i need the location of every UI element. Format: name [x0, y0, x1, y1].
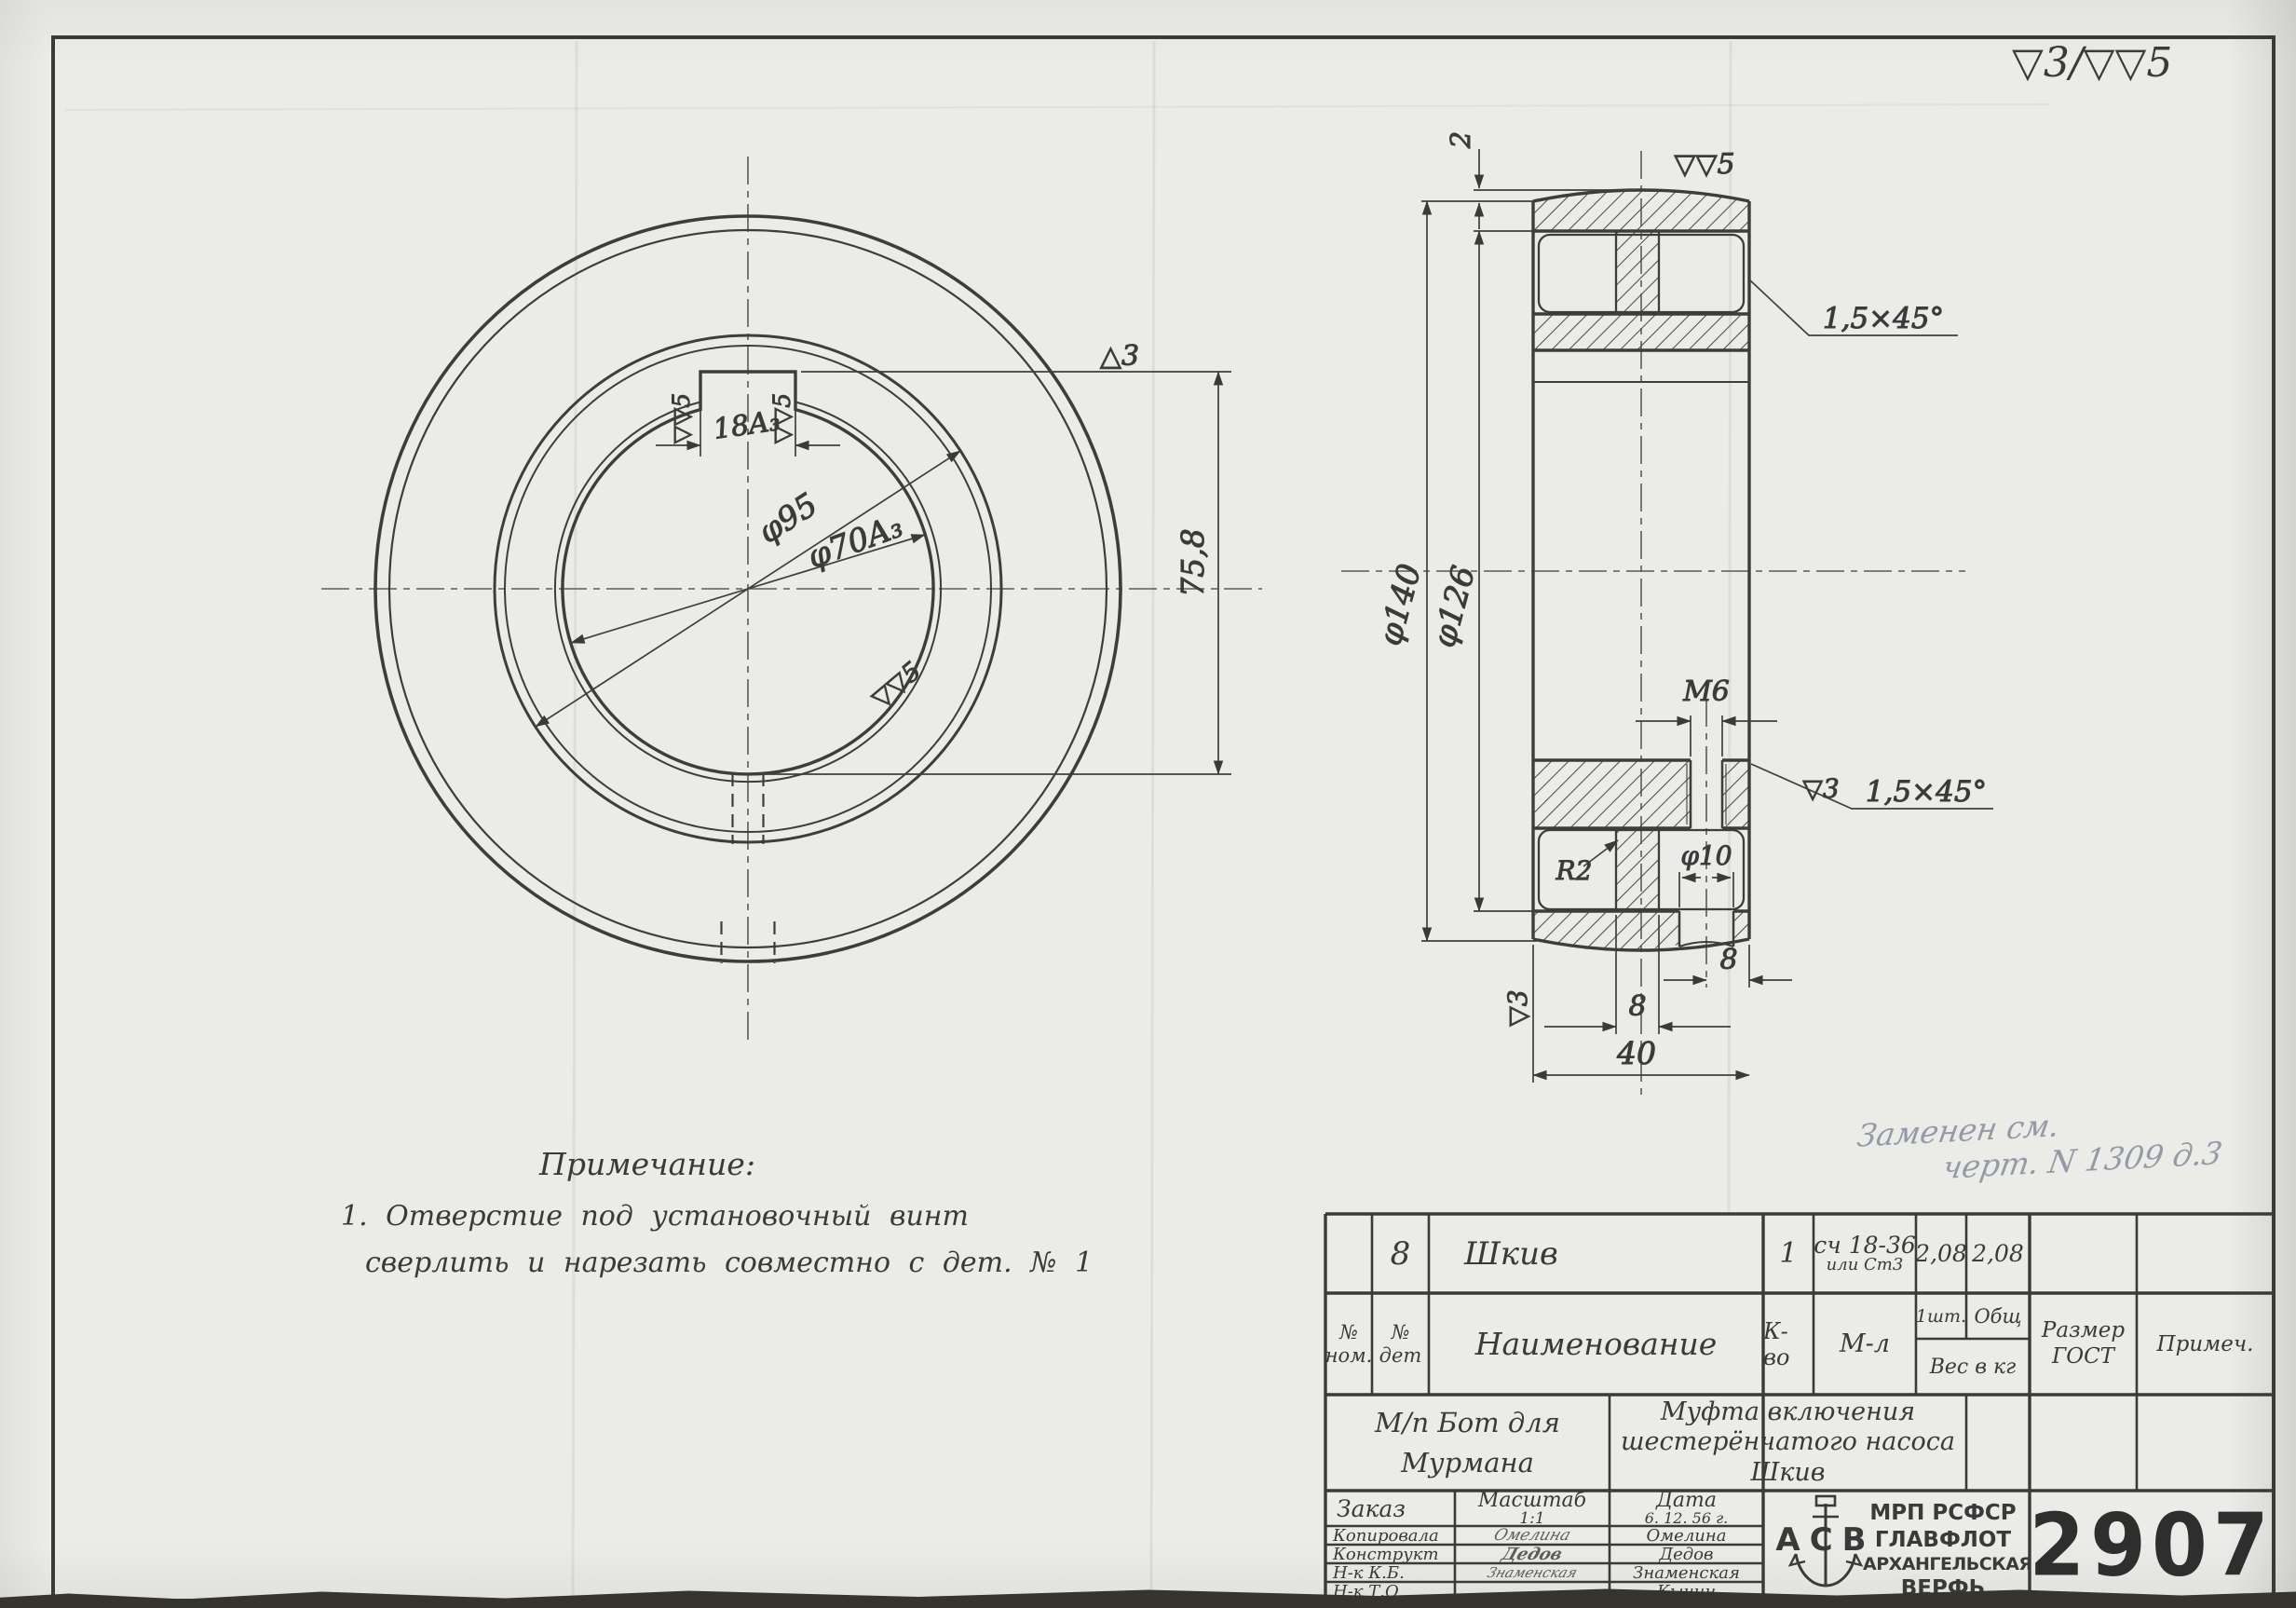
header-size-top: Размер	[2042, 1318, 2125, 1344]
note-line-1: 1. Отверстие под установочный винт	[341, 1200, 969, 1233]
hidden-access-hole	[722, 921, 775, 963]
bore-chamfer-circle	[555, 402, 941, 783]
access-hole-diameter-label: φ10	[1680, 840, 1732, 871]
bore-with-keyway	[563, 372, 933, 774]
crown-height-label: 2	[1445, 131, 1476, 149]
part-material-cell: сч 18-36 или Ст3	[1814, 1214, 1916, 1293]
part-qty-cell: 1	[1763, 1214, 1814, 1293]
front-centerlines	[321, 157, 1262, 1042]
keyway-finish-mark-right: ▽▽5	[768, 393, 795, 443]
section-centerlines	[1341, 151, 1965, 1101]
bore-finish-mark: ▽▽5	[866, 657, 927, 714]
outer-diameter-label: φ140	[1372, 560, 1430, 649]
access-hole	[1679, 911, 1733, 947]
bore-diameter-label: φ70A₃	[803, 508, 908, 577]
header-num-bottom: ном.	[1325, 1344, 1373, 1367]
sig-scribble-1: Дедов	[1452, 1545, 1612, 1563]
project-cell: М/п Бот для Мурмана	[1325, 1395, 1610, 1491]
section-view: 2 φ140 φ126 ▽▽5 1,5×45° M6 ▽3 1,5×45° R2…	[1341, 131, 1993, 1101]
scale-label: Масштаб	[1478, 1491, 1586, 1511]
part-title-cell: Муфта включения шестерёнчатого насоса Шк…	[1610, 1395, 1966, 1491]
order-label: Заказ	[1325, 1491, 1455, 1526]
hub-outer-circle	[495, 335, 1001, 842]
general-finish-note: ▽3/▽▽5	[2012, 39, 2273, 87]
shipyard-anchor-logo: АСВ	[1775, 1496, 1875, 1586]
part-title-line2: шестерёнчатого насоса	[1621, 1427, 1955, 1457]
rim-inner-diameter-label: φ126	[1426, 562, 1484, 651]
setscrew-hole	[1687, 760, 1726, 828]
sig-name-2: Знаменская	[1610, 1563, 1763, 1582]
rim-crown-circle	[389, 230, 1107, 947]
groove-openings	[1539, 231, 1744, 911]
sig-name-0: Омелина	[1610, 1526, 1763, 1545]
sig-name-1: Дедов	[1610, 1545, 1763, 1563]
web-thickness-label: 8	[1628, 990, 1646, 1023]
blueprint-sheet: φ95 φ70A₃ 18A₃ 75,8 △3 ▽▽5 ▽▽5 ▽▽5	[0, 0, 2296, 1608]
header-det-top: №	[1392, 1321, 1410, 1343]
sig-role-2: Н-к К.Б.	[1325, 1563, 1455, 1582]
drawing-number: 2907	[2030, 1486, 2274, 1604]
hidden-setscrew-hole	[733, 773, 764, 844]
scale-value: 1:1	[1519, 1511, 1544, 1527]
section-hatching	[1533, 190, 1749, 950]
header-det-bottom: дет	[1379, 1344, 1422, 1367]
fillet-radius-label: R2	[1556, 855, 1593, 886]
face-finish-mark: △3	[1100, 340, 1139, 373]
setscrew-thread-label: M6	[1682, 675, 1730, 708]
hub-diameter-label: φ95	[752, 486, 824, 552]
part-name-cell: Шкив	[1429, 1214, 1763, 1293]
org-block: МРП РСФСР ГЛАВФЛОТ АРХАНГЕЛЬСКАЯ ВЕРФЬ	[1863, 1500, 2023, 1602]
sig-role-1: Конструкт	[1325, 1545, 1455, 1563]
section-outline	[1533, 190, 1749, 950]
header-weight: Вес в кг	[1916, 1339, 2030, 1395]
overall-width-label: 40	[1616, 1035, 1656, 1071]
weight-total-cell: 2,08	[1966, 1214, 2030, 1293]
section-dim-lines	[1421, 149, 1993, 1083]
face-finish-mark-top: ▽▽5	[1674, 148, 1734, 181]
part-title-line3: Шкив	[1750, 1458, 1825, 1488]
date-value: 6. 12. 56 г.	[1645, 1511, 1729, 1526]
part-title-line1: Муфта включения	[1661, 1397, 1915, 1427]
header-material: М-л	[1814, 1293, 1916, 1395]
keyway-finish-mark-left: ▽▽5	[668, 393, 695, 443]
bore-chamfer-mark: ▽3	[1802, 773, 1839, 804]
project-line2: Мурмана	[1401, 1443, 1534, 1482]
rim-chamfer-label: 1,5×45°	[1823, 302, 1944, 335]
header-qty: К-во	[1763, 1293, 1814, 1395]
scale-cell: Масштаб 1:1	[1455, 1491, 1610, 1526]
org-line3: АРХАНГЕЛЬСКАЯ	[1863, 1554, 2023, 1576]
project-line1: М/п Бот для	[1375, 1403, 1560, 1442]
sig-scribble-2: Знаменская	[1452, 1563, 1612, 1582]
part-number-cell: 8	[1372, 1214, 1429, 1293]
notes-title: Примечание:	[503, 1146, 792, 1182]
hub-fillet-circle	[505, 346, 991, 832]
bore-chamfer-label: 1,5×45°	[1866, 775, 1987, 809]
date-label: Дата	[1656, 1491, 1717, 1511]
header-size-bottom: ГОСТ	[2052, 1344, 2114, 1370]
header-size-gost: Размер ГОСТ	[2030, 1293, 2137, 1395]
rim-outer-circle	[375, 216, 1121, 961]
header-note: Примеч.	[2137, 1293, 2274, 1395]
logo-letters: АСВ	[1775, 1521, 1875, 1559]
weight-unit-cell: 2,08	[1916, 1214, 1966, 1293]
header-per-item: 1шт.	[1916, 1293, 1966, 1339]
note-line-2: сверлить и нарезать совместно с дет. № 1	[365, 1247, 1093, 1279]
header-det-col: № дет	[1372, 1293, 1429, 1395]
hole-offset-label: 8	[1719, 944, 1737, 976]
header-num-top: №	[1339, 1321, 1358, 1343]
side-face-finish-mark: ▽3	[1502, 989, 1533, 1026]
pencil-replacement-note: Заменен см. черт. N 1309 д.3	[1856, 1097, 2269, 1191]
date-cell: Дата 6. 12. 56 г.	[1610, 1491, 1763, 1526]
sig-scribble-0: Омелина	[1452, 1526, 1612, 1545]
org-line2: ГЛАВФЛОТ	[1863, 1527, 2023, 1554]
keyway-height-label: 75,8	[1175, 528, 1211, 596]
org-line1: МРП РСФСР	[1863, 1500, 2023, 1527]
header-total: Общ	[1966, 1293, 2030, 1339]
sig-role-0: Копировала	[1325, 1526, 1455, 1545]
material-line-2: или Ст3	[1827, 1257, 1904, 1274]
keyway-width-label: 18A₃	[712, 404, 782, 446]
header-name: Наименование	[1429, 1293, 1763, 1395]
front-dim-lines	[536, 372, 1231, 774]
front-view: φ95 φ70A₃ 18A₃ 75,8 △3 ▽▽5 ▽▽5 ▽▽5	[321, 157, 1262, 1042]
material-line-1: сч 18-36	[1814, 1233, 1916, 1257]
header-num-col: № ном.	[1325, 1293, 1372, 1395]
